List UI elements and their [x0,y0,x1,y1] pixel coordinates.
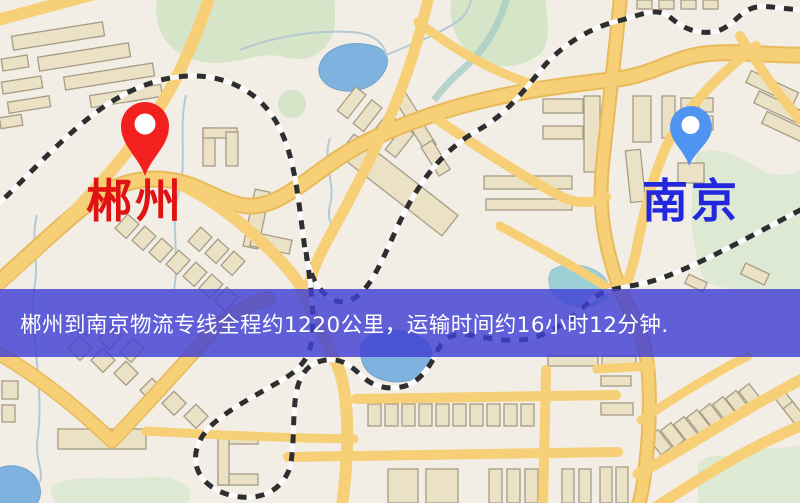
origin-marker[interactable] [118,100,172,178]
origin-pin-icon [118,100,172,178]
route-info-banner: 郴州到南京物流专线全程约1220公里，运输时间约16小时12分钟. [0,289,800,357]
destination-pin-icon [668,104,714,168]
map-viewport: 郴州到南京物流专线全程约1220公里，运输时间约16小时12分钟. 郴州 南京 [0,0,800,503]
route-info-text: 郴州到南京物流专线全程约1220公里，运输时间约16小时12分钟. [20,308,669,339]
origin-label: 郴州 [86,178,184,224]
destination-marker[interactable] [668,104,714,168]
destination-label: 南京 [642,178,740,224]
base-map [0,0,800,503]
